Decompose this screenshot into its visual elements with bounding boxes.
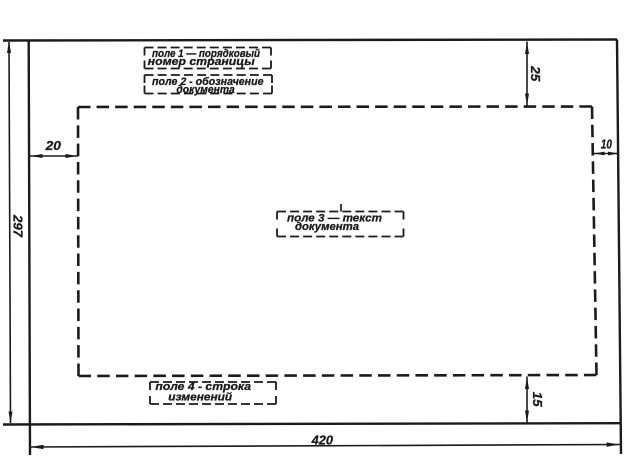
svg-text:15: 15 — [530, 392, 545, 408]
svg-text:20: 20 — [45, 138, 62, 153]
svg-text:25: 25 — [528, 65, 543, 82]
svg-text:изменений: изменений — [168, 391, 232, 403]
svg-text:документа: документа — [295, 221, 359, 233]
svg-text:10: 10 — [601, 136, 613, 151]
svg-text:номер страницы: номер страницы — [148, 56, 256, 68]
svg-text:297: 297 — [11, 214, 26, 238]
svg-text:420: 420 — [311, 433, 334, 448]
svg-text:документа: документа — [176, 84, 234, 96]
